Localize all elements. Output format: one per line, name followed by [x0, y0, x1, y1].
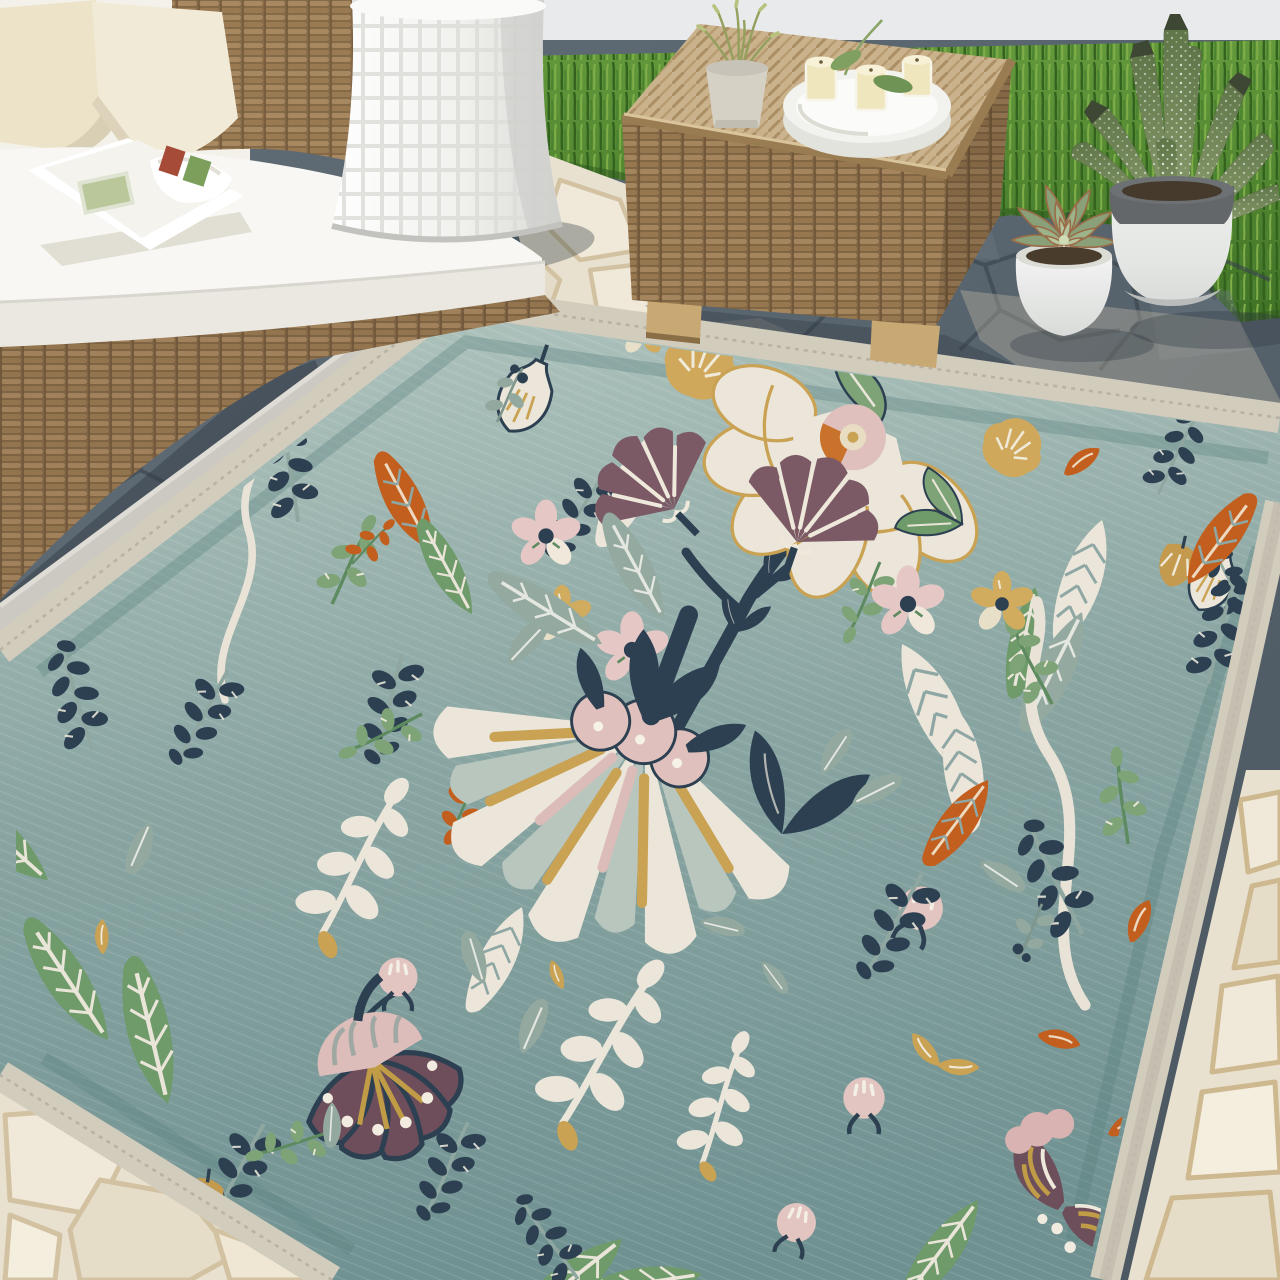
candle-glass — [806, 57, 836, 101]
scene-canvas — [0, 0, 1280, 1280]
table-foot-right — [870, 318, 940, 368]
ceramic-side-stool — [330, 0, 570, 256]
aloe-soil — [1122, 181, 1222, 201]
plant-pot-shadow — [714, 120, 759, 128]
plant-pot-rim — [706, 60, 768, 76]
plant-pot — [706, 68, 768, 128]
succulent-soil — [1026, 247, 1102, 265]
patio-scene — [0, 0, 1280, 1280]
